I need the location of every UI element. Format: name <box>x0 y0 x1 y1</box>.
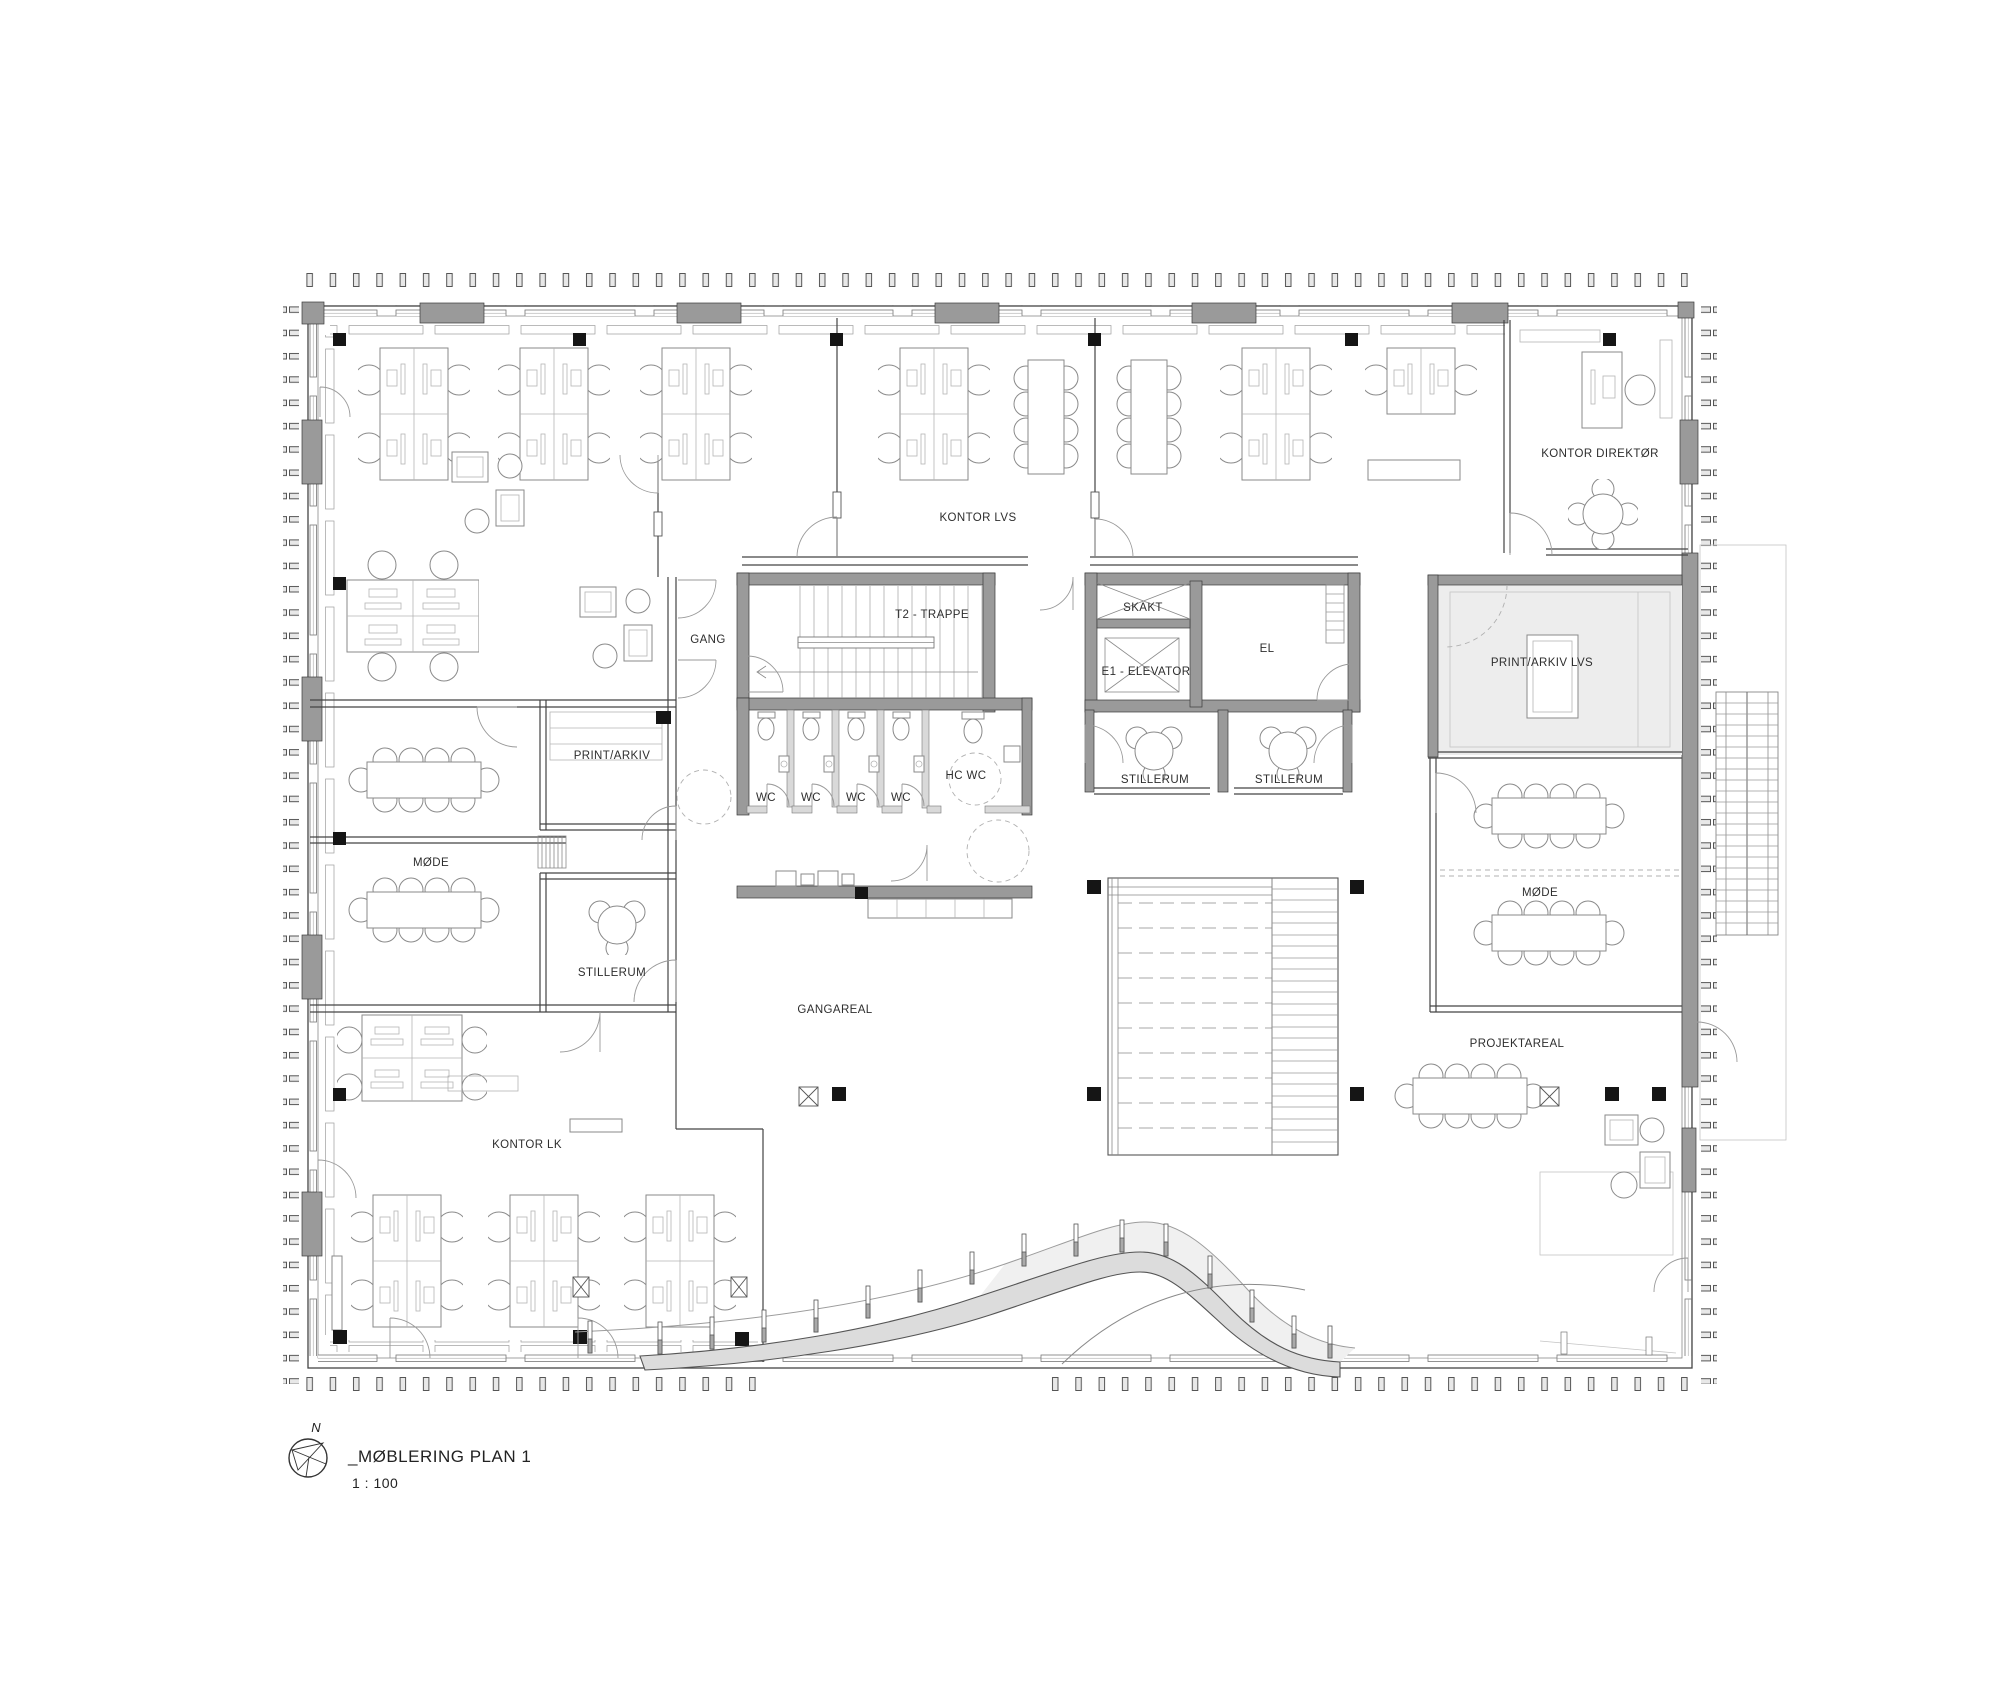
door-arc <box>1317 664 1353 700</box>
desk-cluster <box>874 348 994 480</box>
meeting-table <box>349 748 499 812</box>
cabinet <box>332 1256 342 1330</box>
column <box>855 887 868 899</box>
room-label-stillerum-core-left: STILLERUM <box>1121 774 1189 786</box>
desk-cluster <box>347 551 479 681</box>
sill-row-top <box>330 325 1505 337</box>
room-label-gangareal: GANGAREAL <box>797 1004 872 1016</box>
plan-title: _MØBLERING PLAN 1 <box>347 1447 531 1466</box>
door-arc <box>1095 519 1133 557</box>
sideboard <box>570 1119 622 1132</box>
room-label-print-arkiv-lvs: PRINT/ARKIV LVS <box>1491 657 1593 669</box>
room-label-kontor-direktor: KONTOR DIREKTØR <box>1541 448 1659 460</box>
column <box>573 333 586 346</box>
central-stair <box>1108 878 1338 1155</box>
room-label-stillerum-core-right: STILLERUM <box>1255 774 1323 786</box>
plan-scale: 1 : 100 <box>352 1475 398 1491</box>
column <box>735 1332 749 1346</box>
meeting-table <box>1395 1064 1545 1128</box>
room-label-kontor-lvs: KONTOR LVS <box>939 512 1016 524</box>
round-table <box>1567 478 1639 550</box>
title-block: N _MØBLERING PLAN 1 1 : 100 <box>289 1420 531 1491</box>
column <box>333 1330 347 1344</box>
door-arc <box>642 806 676 840</box>
column <box>1652 1087 1666 1101</box>
side-table <box>1640 1118 1664 1142</box>
desk-cluster <box>484 1195 604 1327</box>
column <box>1350 1087 1364 1101</box>
furniture <box>332 330 1672 1330</box>
shelf <box>1520 330 1600 342</box>
room-label-hc-wc: HC WC <box>946 770 987 782</box>
room-label-kontor-lk: KONTOR LK <box>492 1139 562 1151</box>
door-arc <box>891 845 927 881</box>
desk-cluster <box>1216 348 1336 480</box>
cabinet <box>1660 340 1672 418</box>
window-band-bottom <box>318 1353 1682 1364</box>
stair-t2 <box>757 586 982 698</box>
round-table <box>589 901 645 959</box>
armchair <box>1640 1152 1670 1188</box>
room-label-el: EL <box>1260 643 1275 655</box>
accordion-partition <box>538 836 566 868</box>
meeting-table <box>349 878 499 942</box>
lounge-group <box>580 587 652 668</box>
kitchen-unit <box>842 874 854 885</box>
column <box>1345 333 1358 346</box>
room-label-wc3: WC <box>846 792 866 804</box>
column <box>333 1088 346 1101</box>
room-label-print-arkiv: PRINT/ARKIV <box>574 750 651 762</box>
room-label-gang: GANG <box>690 634 725 646</box>
column <box>333 333 346 346</box>
structural-columns <box>333 333 1666 1346</box>
kitchen-unit <box>776 871 796 886</box>
side-table <box>1611 1172 1637 1198</box>
door-arc <box>1040 577 1073 610</box>
kitchen-unit <box>801 874 814 885</box>
partition-mullions <box>654 492 1099 536</box>
wc-fixtures <box>758 712 789 772</box>
kitchen-unit <box>818 871 838 886</box>
drawing-sheet: KONTOR LVS KONTOR DIREKTØR GANG T2 - TRA… <box>0 0 2000 1701</box>
door-arc <box>797 517 837 557</box>
column <box>830 333 843 346</box>
wc-fixtures <box>803 712 834 772</box>
cistern <box>962 712 984 719</box>
chair <box>1625 375 1655 405</box>
meeting-table <box>1117 360 1181 474</box>
meeting-table <box>1474 784 1624 848</box>
column <box>1603 333 1616 346</box>
door-arc <box>1510 513 1552 555</box>
desk-cluster <box>636 348 756 480</box>
door-arc <box>747 656 783 692</box>
room-label-wc1: WC <box>756 792 776 804</box>
room-label-wc4: WC <box>891 792 911 804</box>
room-label-elevator: E1 - ELEVATOR <box>1102 666 1191 678</box>
toilet-icon <box>964 719 982 743</box>
copier <box>1527 635 1578 718</box>
meeting-table <box>1474 901 1624 965</box>
meeting-table <box>1014 360 1078 474</box>
room-label-skakt: SKAKT <box>1123 602 1163 614</box>
desk-cluster <box>620 1195 740 1327</box>
column <box>832 1087 846 1101</box>
column <box>1605 1087 1619 1101</box>
room-label-stillerum-left: STILLERUM <box>578 967 646 979</box>
door-arc <box>1436 773 1476 813</box>
sink-icon <box>1004 746 1020 762</box>
desk-cluster <box>336 1015 488 1101</box>
door-arc <box>560 1012 600 1052</box>
door-arc <box>678 580 716 618</box>
room-label-mode-right: MØDE <box>1522 887 1558 899</box>
column <box>656 711 671 724</box>
door-arc <box>1654 1258 1688 1292</box>
sideboard <box>1368 460 1460 480</box>
room-label-trappe: T2 - TRAPPE <box>895 609 969 621</box>
door-arc <box>477 707 517 747</box>
room-label-mode-left: MØDE <box>413 857 449 869</box>
door-arc <box>678 660 716 698</box>
desk-cluster-pair <box>1361 348 1481 414</box>
wc-fixtures <box>848 712 879 772</box>
north-arrow-icon <box>289 1439 327 1477</box>
desk <box>1582 352 1622 428</box>
column <box>1350 880 1364 894</box>
sill-row-bottom <box>330 1340 758 1352</box>
room-label-projektareal: PROJEKTAREAL <box>1470 1038 1565 1050</box>
column <box>1088 333 1101 346</box>
column <box>333 832 346 845</box>
column <box>333 577 346 590</box>
lockers <box>868 899 1012 918</box>
north-label: N <box>311 1420 321 1435</box>
room-label-wc2: WC <box>801 792 821 804</box>
mode-right-divider <box>1440 870 1680 876</box>
column <box>1087 1087 1101 1101</box>
lounge-group <box>452 452 524 533</box>
column <box>1087 880 1101 894</box>
floor-plan-canvas: KONTOR LVS KONTOR DIREKTØR GANG T2 - TRA… <box>0 0 2000 1701</box>
desk-cluster <box>347 1195 467 1327</box>
wc-fixtures <box>893 712 924 772</box>
